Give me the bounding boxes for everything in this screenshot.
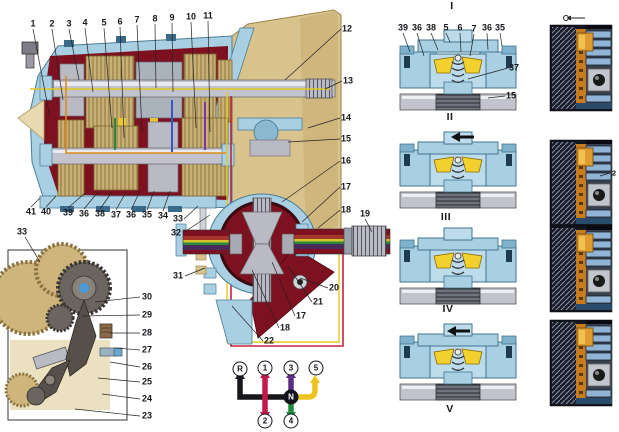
main-callout-15: 15 [341,135,351,144]
main-callout-14: 14 [341,114,351,123]
sync-callout-36: 36 [412,24,422,33]
sync-callout-39: 39 [398,24,408,33]
main-callout-31: 31 [173,272,183,281]
main-callout-35: 35 [142,211,152,220]
stage-label-V: V [446,404,454,415]
main-callout-3: 3 [66,20,71,29]
shift-position-4: 4 [284,414,299,429]
main-callout-8: 8 [152,15,157,24]
selector-inset-view [0,244,127,420]
main-callout-37: 37 [111,211,121,220]
main-callout-36: 36 [126,211,136,220]
inset-callout-30: 30 [142,293,152,302]
sync-callout-7: 7 [471,25,476,34]
inset-callout-23: 23 [142,412,152,421]
main-callout-18: 18 [280,324,290,333]
shift-position-2: 2 [258,414,273,429]
main-callout-33: 33 [173,215,183,224]
diagram-canvas: 1234567891011121314151617181941403936383… [0,0,619,432]
inset-callout-26: 26 [142,363,152,372]
sync-callout-15: 15 [506,92,516,101]
sync-callout-5: 5 [443,24,448,33]
stage-label-II: II [447,112,454,123]
main-callout-21: 21 [313,298,323,307]
main-callout-10: 10 [186,13,196,22]
main-callout-17: 17 [296,312,306,321]
main-callout-1: 1 [30,20,35,29]
main-callout-18: 18 [341,206,351,215]
main-callout-6: 6 [117,18,122,27]
main-callout-19: 19 [360,210,370,219]
engagement-detail-strip [550,16,612,407]
inset-callout-25: 25 [142,378,152,387]
sync-callout-38: 38 [426,24,436,33]
strip-top-arrow-icon [564,16,586,21]
main-callout-7: 7 [134,16,139,25]
main-callout-11: 11 [203,12,213,21]
main-callout-36: 36 [79,210,89,219]
main-callout-38: 38 [95,210,105,219]
main-callout-41: 41 [26,208,36,217]
main-callout-40: 40 [41,208,51,217]
inset-callout-33: 33 [17,228,27,237]
sync-callout-6: 6 [457,24,462,33]
stage-label-III: III [441,212,451,223]
shift-position-N: N [284,390,299,405]
shift-position-1: 1 [258,361,273,376]
sync-callout-37: 37 [509,64,519,73]
main-callout-20: 20 [329,284,339,293]
main-callout-22: 22 [264,337,274,346]
breather-plug-icon [22,42,38,68]
main-callout-12: 12 [342,25,352,34]
shift-arm-fifth [297,382,315,397]
main-callout-17: 17 [341,183,351,192]
main-callout-39: 39 [63,209,73,218]
main-callout-16: 16 [341,157,351,166]
bolt-icon [100,324,112,338]
main-callout-34: 34 [158,212,168,221]
shift-pattern [235,370,320,420]
main-callout-4: 4 [82,19,87,28]
shift-position-5: 5 [309,361,324,376]
main-callout-9: 9 [169,14,174,23]
inset-callout-27: 27 [142,346,152,355]
main-callout-2: 2 [49,20,54,29]
main-callout-5: 5 [101,19,106,28]
shift-position-3: 3 [284,361,299,376]
stage-label-IV: IV [443,304,454,315]
shift-position-R: R [233,362,248,377]
inset-callout-29: 29 [142,311,152,320]
sync-callout-35: 35 [495,24,505,33]
strip-callout-2: 2 [612,169,616,177]
inset-callout-24: 24 [142,395,152,404]
inset-callout-28: 28 [142,329,152,338]
synchronizer-stage-panels [400,30,516,400]
stage-label-I: I [450,1,453,12]
main-callout-32: 32 [171,229,181,238]
main-callout-13: 13 [343,77,353,86]
sync-callout-36: 36 [482,24,492,33]
